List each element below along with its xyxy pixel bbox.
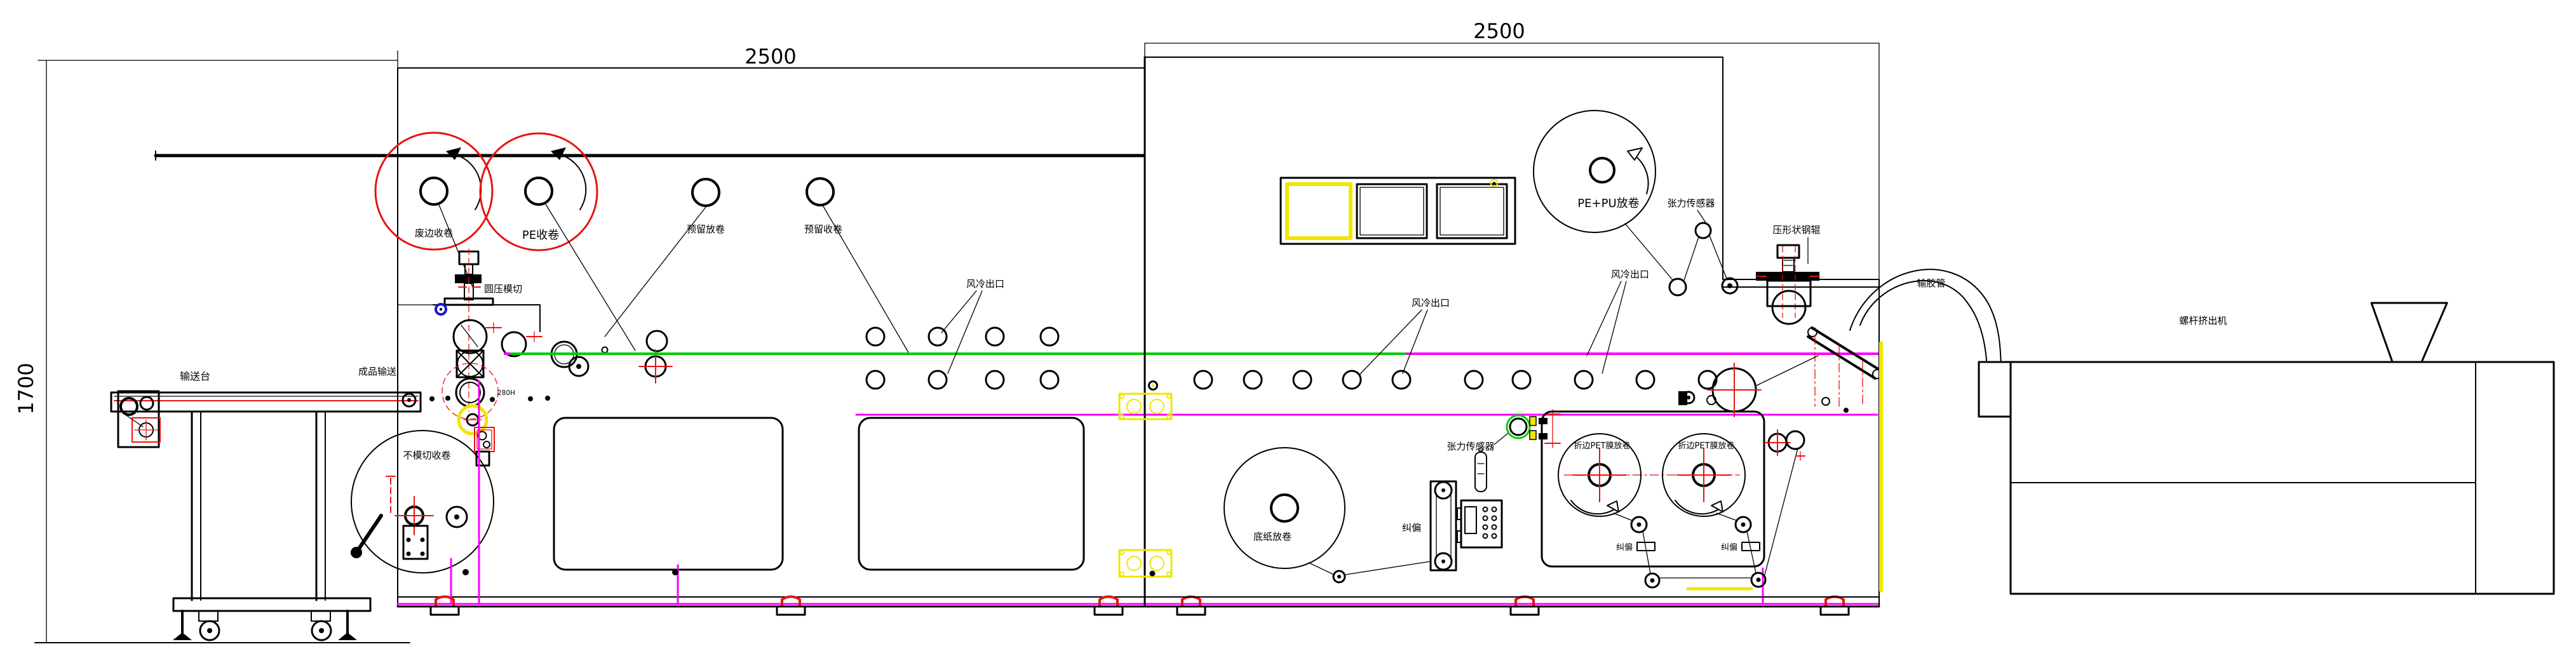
air-outlet-label-3: 风冷出口 [1587,269,1649,373]
yellow-highlight-box [1287,184,1351,238]
dim-2500-left-text: 2500 [745,44,796,69]
air-outlet-label-1: 风冷出口 [941,278,1004,373]
cooling-roller-row-bottom [867,371,1716,389]
tension-sensor-top: 张力传感器 [1667,198,1737,295]
air-outlet-text-3: 风冷出口 [1611,269,1649,280]
rotation-arrow-icon [1628,148,1642,160]
web-guide-station: 纠偏 [1402,448,1502,570]
rotary-die-cut-label: 圆压模切 [484,283,522,295]
air-outlet-label-2: 风冷出口 [1359,297,1450,375]
tilted-discharge-conveyor [1808,328,1882,413]
pepu-unwinder: PE+PU放卷 [1534,111,1673,281]
conveyor-table: 输送台 [111,370,421,640]
left-frame [156,68,1145,606]
frame-panel-b [859,418,1084,570]
pet-film-compartment: 折边PET膜放卷 折边PET膜放卷 纠偏 纠偏 [1542,412,1764,566]
rotation-arrow-icon [446,147,461,160]
tension-sensor-top-label: 张力传感器 [1667,198,1715,209]
finished-conveying-label: 成品输送 [358,366,396,377]
shaped-steel-roller-station: 压形状钢辊 [1756,224,1821,324]
dimension-width-left-2500: 2500 [398,44,1143,69]
web-guide-left-label: 纠偏 [1616,543,1633,553]
frame-joint [1119,57,1171,606]
web-guide-right-label: 纠偏 [1721,543,1737,553]
foot [431,597,459,615]
web-line [1765,448,1798,575]
rotation-arrow-icon [551,147,566,160]
reserved-unwinder-reel: 预留放卷 [605,179,725,337]
web-guide-label: 纠偏 [1402,522,1421,533]
control-box-assembly [1281,178,1515,244]
screw-extruder: 螺杆挤出机 [1979,303,2554,594]
dimension-width-right-2500: 2500 [1145,19,1879,279]
dim-1700-text: 1700 [14,363,38,414]
waste-edge-winder-label: 废边收卷 [415,227,453,239]
rail-bolt-dots [429,396,550,402]
hopper-funnel [2371,303,2447,362]
foot [1095,597,1123,615]
base-paper-unwinder-label: 底纸放卷 [1253,531,1291,542]
dimension-height-1700: 1700 [14,60,410,643]
non-diecut-winder: 不模切收卷 [351,431,494,573]
machine-layout-drawing: 1700 2500 2500 输送台 [0,0,2576,670]
reserved-winder-reel: 预留收卷 [804,178,908,352]
frame-panel-a [554,418,783,570]
dim-2500-right-text: 2500 [1473,19,1525,43]
reserved-unwinder-label: 预留放卷 [687,224,725,235]
right-frame [1145,57,1879,606]
conveyor-table-label: 输送台 [180,370,210,382]
pet-unwinder-right-label: 折边PET膜放卷 [1678,441,1735,451]
foot [777,597,805,615]
pe-winder-reel: PE收卷 [480,133,635,351]
non-diecut-winder-label: 不模切收卷 [403,450,450,461]
air-outlet-text-2: 风冷出口 [1412,297,1450,309]
turret-hub-highlight [459,406,494,466]
cad-canvas: 1700 2500 2500 输送台 [0,0,2576,670]
pet-unwinder-left-label: 折边PET膜放卷 [1574,441,1631,451]
tension-sensor-bottom-label: 张力传感器 [1446,441,1494,452]
pe-winder-label: PE收卷 [522,229,559,242]
air-outlet-text-1: 风冷出口 [966,278,1004,290]
pepu-unwinder-label: PE+PU放卷 [1577,197,1639,210]
base-paper-unwinder: 底纸放卷 [1224,448,1431,582]
screw-extruder-label: 螺杆挤出机 [2179,315,2227,326]
shaped-steel-roller-label: 压形状钢辊 [1772,224,1820,236]
roller-model-label: 280H [497,389,515,397]
